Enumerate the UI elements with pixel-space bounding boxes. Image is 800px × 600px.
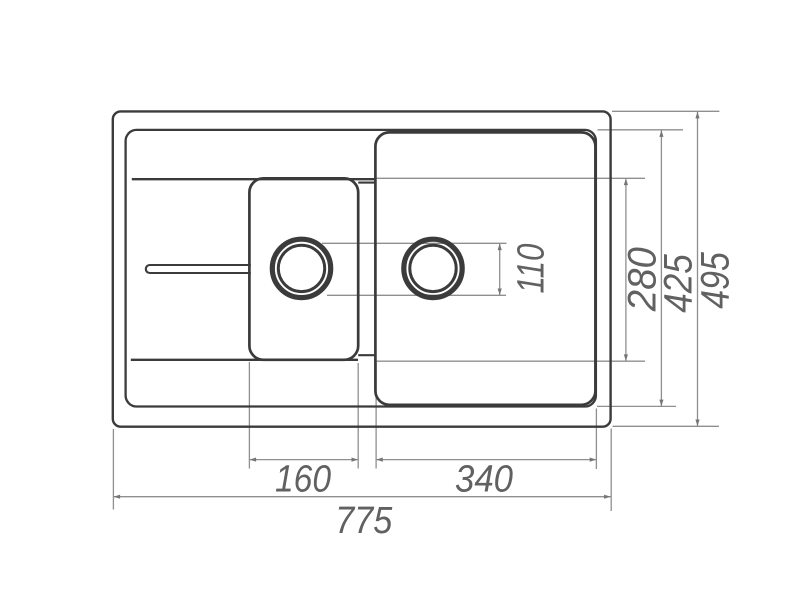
svg-text:340: 340 [455,459,513,501]
svg-text:160: 160 [275,459,331,501]
svg-text:110: 110 [511,244,553,294]
svg-text:495: 495 [693,251,737,308]
svg-text:775: 775 [335,500,393,542]
